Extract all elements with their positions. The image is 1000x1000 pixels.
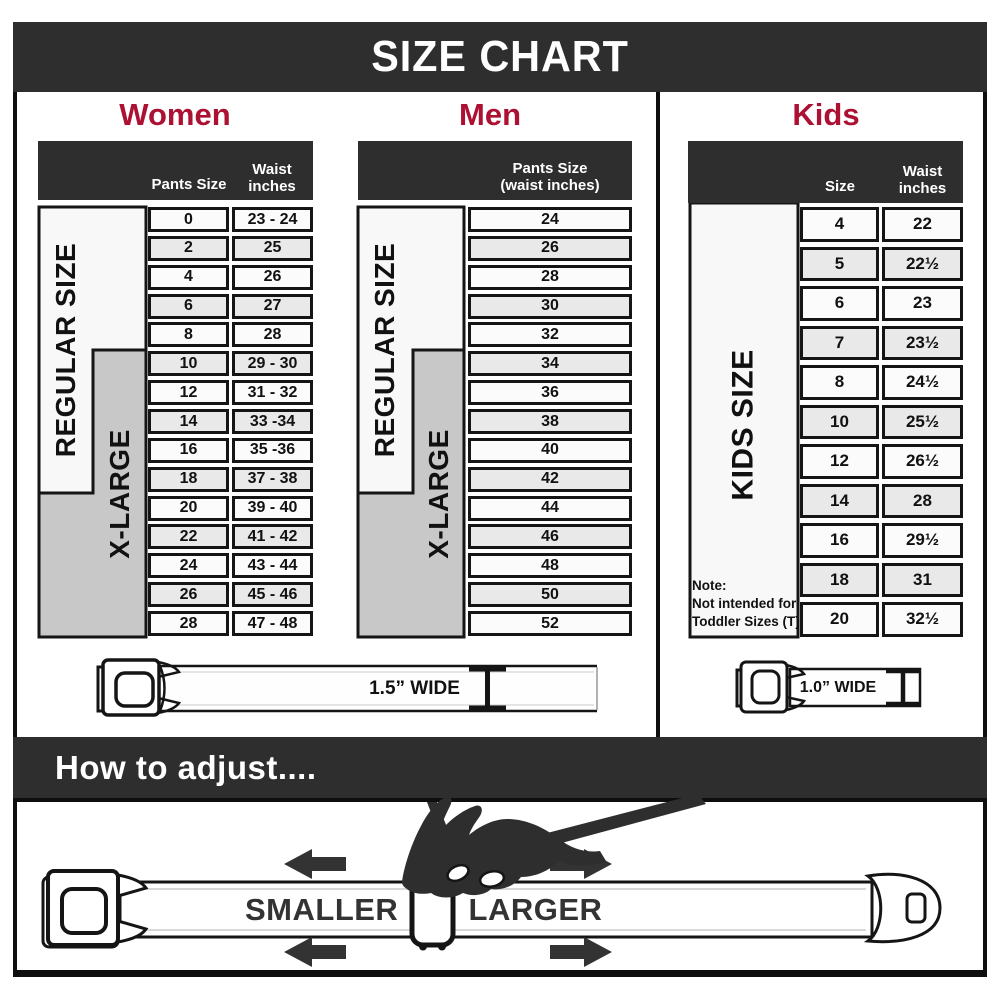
women-table-rows: 023 - 242254266278281029 - 301231 - 3214… [148, 207, 313, 640]
table-cell: 5 [800, 247, 879, 282]
women-size-row: 2443 - 44 [148, 553, 313, 578]
men-size-row: 34 [468, 351, 632, 376]
men-size-row: 30 [468, 294, 632, 319]
table-cell: 6 [800, 286, 879, 321]
table-cell: 33 -34 [232, 409, 313, 434]
kids-size-row: 723½ [800, 326, 963, 361]
kids-belt-width-label: 1.0” WIDE [796, 679, 880, 697]
men-size-row: 32 [468, 322, 632, 347]
men-size-row: 50 [468, 582, 632, 607]
women-size-row: 627 [148, 294, 313, 319]
table-cell: 37 - 38 [232, 467, 313, 492]
men-size-row: 52 [468, 611, 632, 636]
table-cell: 29½ [882, 523, 963, 558]
men-table-header: Pants Size(waist inches) [358, 141, 632, 200]
women-pants-size-header: Pants Size [146, 176, 232, 194]
kids-size-header: Size [800, 178, 880, 196]
kids-size-row: 1025½ [800, 405, 963, 440]
women-size-row: 2039 - 40 [148, 496, 313, 521]
table-cell: 20 [800, 602, 879, 637]
table-cell: 14 [800, 484, 879, 519]
table-cell: 27 [232, 294, 313, 319]
table-cell: 48 [468, 553, 632, 578]
table-cell: 2 [148, 236, 229, 261]
table-cell: 40 [468, 438, 632, 463]
men-pants-size-header: Pants Size(waist inches) [468, 160, 632, 195]
arrow-left-icon [284, 849, 346, 879]
women-table-header: Pants Size Waistinches [38, 141, 313, 200]
men-size-row: 38 [468, 409, 632, 434]
women-size-row: 023 - 24 [148, 207, 313, 232]
table-cell: 12 [800, 444, 879, 479]
kids-size-row: 1629½ [800, 523, 963, 558]
men-size-row: 26 [468, 236, 632, 261]
table-cell: 41 - 42 [232, 524, 313, 549]
table-cell: 20 [148, 496, 229, 521]
women-size-row: 1231 - 32 [148, 380, 313, 405]
table-cell: 31 - 32 [232, 380, 313, 405]
header-line: inches [899, 180, 947, 197]
arrow-right-icon [550, 937, 612, 967]
table-cell: 8 [800, 365, 879, 400]
women-size-row: 2241 - 42 [148, 524, 313, 549]
kids-table-rows: 422522½623723½824½1025½1226½14281629½183… [800, 207, 963, 642]
men-table-rows: 242628303234363840424446485052 [468, 207, 632, 640]
kids-size-row: 623 [800, 286, 963, 321]
table-cell: 46 [468, 524, 632, 549]
women-size-row: 828 [148, 322, 313, 347]
men-size-row: 36 [468, 380, 632, 405]
table-cell: 24½ [882, 365, 963, 400]
table-cell: 0 [148, 207, 229, 232]
note-line: Toddler Sizes (T) [692, 614, 800, 629]
table-cell: 23 [882, 286, 963, 321]
table-cell: 43 - 44 [232, 553, 313, 578]
size-chart-image: SIZE CHART How to adjust.... [0, 0, 1000, 1000]
kids-size-row: 422 [800, 207, 963, 242]
table-cell: 10 [800, 405, 879, 440]
table-cell: 25 [232, 236, 313, 261]
table-cell: 36 [468, 380, 632, 405]
kids-table-header: Size Waistinches [688, 141, 963, 203]
table-cell: 8 [148, 322, 229, 347]
larger-label: LARGER [468, 892, 603, 928]
note-line: Not intended for [692, 596, 796, 611]
table-cell: 7 [800, 326, 879, 361]
kids-size-row: 824½ [800, 365, 963, 400]
women-size-row: 2645 - 46 [148, 582, 313, 607]
header-line: Waist [252, 161, 291, 178]
kids-size-row: 522½ [800, 247, 963, 282]
header-line: (waist inches) [500, 177, 599, 194]
table-cell: 38 [468, 409, 632, 434]
table-cell: 23 - 24 [232, 207, 313, 232]
table-cell: 12 [148, 380, 229, 405]
table-cell: 44 [468, 496, 632, 521]
men-section-title: Men [390, 97, 590, 133]
arrow-left-icon [284, 937, 346, 967]
table-cell: 24 [468, 207, 632, 232]
kids-size-row: 2032½ [800, 602, 963, 637]
table-cell: 35 -36 [232, 438, 313, 463]
table-cell: 16 [148, 438, 229, 463]
note-line: Note: [692, 578, 727, 593]
header-line: Waist [903, 163, 942, 180]
table-cell: 30 [468, 294, 632, 319]
table-cell: 28 [468, 265, 632, 290]
kids-size-row: 1831 [800, 563, 963, 598]
women-section-title: Women [75, 97, 275, 133]
header-line: Pants Size [512, 160, 587, 177]
table-cell: 4 [148, 265, 229, 290]
men-size-row: 40 [468, 438, 632, 463]
men-size-row: 24 [468, 207, 632, 232]
table-cell: 18 [148, 467, 229, 492]
table-cell: 47 - 48 [232, 611, 313, 636]
men-size-row: 28 [468, 265, 632, 290]
table-cell: 45 - 46 [232, 582, 313, 607]
men-size-row: 42 [468, 467, 632, 492]
smaller-label: SMALLER [245, 892, 385, 928]
table-cell: 52 [468, 611, 632, 636]
women-size-row: 225 [148, 236, 313, 261]
adult-belt-width-label: 1.5” WIDE [342, 678, 487, 700]
women-size-row: 426 [148, 265, 313, 290]
table-cell: 31 [882, 563, 963, 598]
table-cell: 26 [232, 265, 313, 290]
table-cell: 14 [148, 409, 229, 434]
table-cell: 22 [882, 207, 963, 242]
women-size-row: 1029 - 30 [148, 351, 313, 376]
table-cell: 34 [468, 351, 632, 376]
kids-size-row: 1226½ [800, 444, 963, 479]
women-waist-header: Waistinches [232, 161, 312, 196]
women-size-row: 2847 - 48 [148, 611, 313, 636]
table-cell: 28 [232, 322, 313, 347]
table-cell: 28 [148, 611, 229, 636]
table-cell: 16 [800, 523, 879, 558]
women-size-row: 1635 -36 [148, 438, 313, 463]
table-cell: 39 - 40 [232, 496, 313, 521]
table-cell: 4 [800, 207, 879, 242]
table-cell: 26 [468, 236, 632, 261]
kids-note: Note:Not intended forToddler Sizes (T) [692, 577, 800, 630]
table-cell: 10 [148, 351, 229, 376]
kids-section-title: Kids [726, 97, 926, 133]
table-cell: 26½ [882, 444, 963, 479]
table-cell: 29 - 30 [232, 351, 313, 376]
table-cell: 28 [882, 484, 963, 519]
table-cell: 18 [800, 563, 879, 598]
men-size-row: 46 [468, 524, 632, 549]
women-size-row: 1433 -34 [148, 409, 313, 434]
men-size-row: 48 [468, 553, 632, 578]
kids-waist-header: Waistinches [882, 163, 963, 198]
table-cell: 25½ [882, 405, 963, 440]
table-cell: 32 [468, 322, 632, 347]
women-size-row: 1837 - 38 [148, 467, 313, 492]
header-line: inches [248, 178, 296, 195]
table-cell: 26 [148, 582, 229, 607]
table-cell: 32½ [882, 602, 963, 637]
table-cell: 22 [148, 524, 229, 549]
table-cell: 6 [148, 294, 229, 319]
table-cell: 42 [468, 467, 632, 492]
table-cell: 24 [148, 553, 229, 578]
kids-size-row: 1428 [800, 484, 963, 519]
table-cell: 22½ [882, 247, 963, 282]
table-cell: 50 [468, 582, 632, 607]
men-size-row: 44 [468, 496, 632, 521]
table-cell: 23½ [882, 326, 963, 361]
